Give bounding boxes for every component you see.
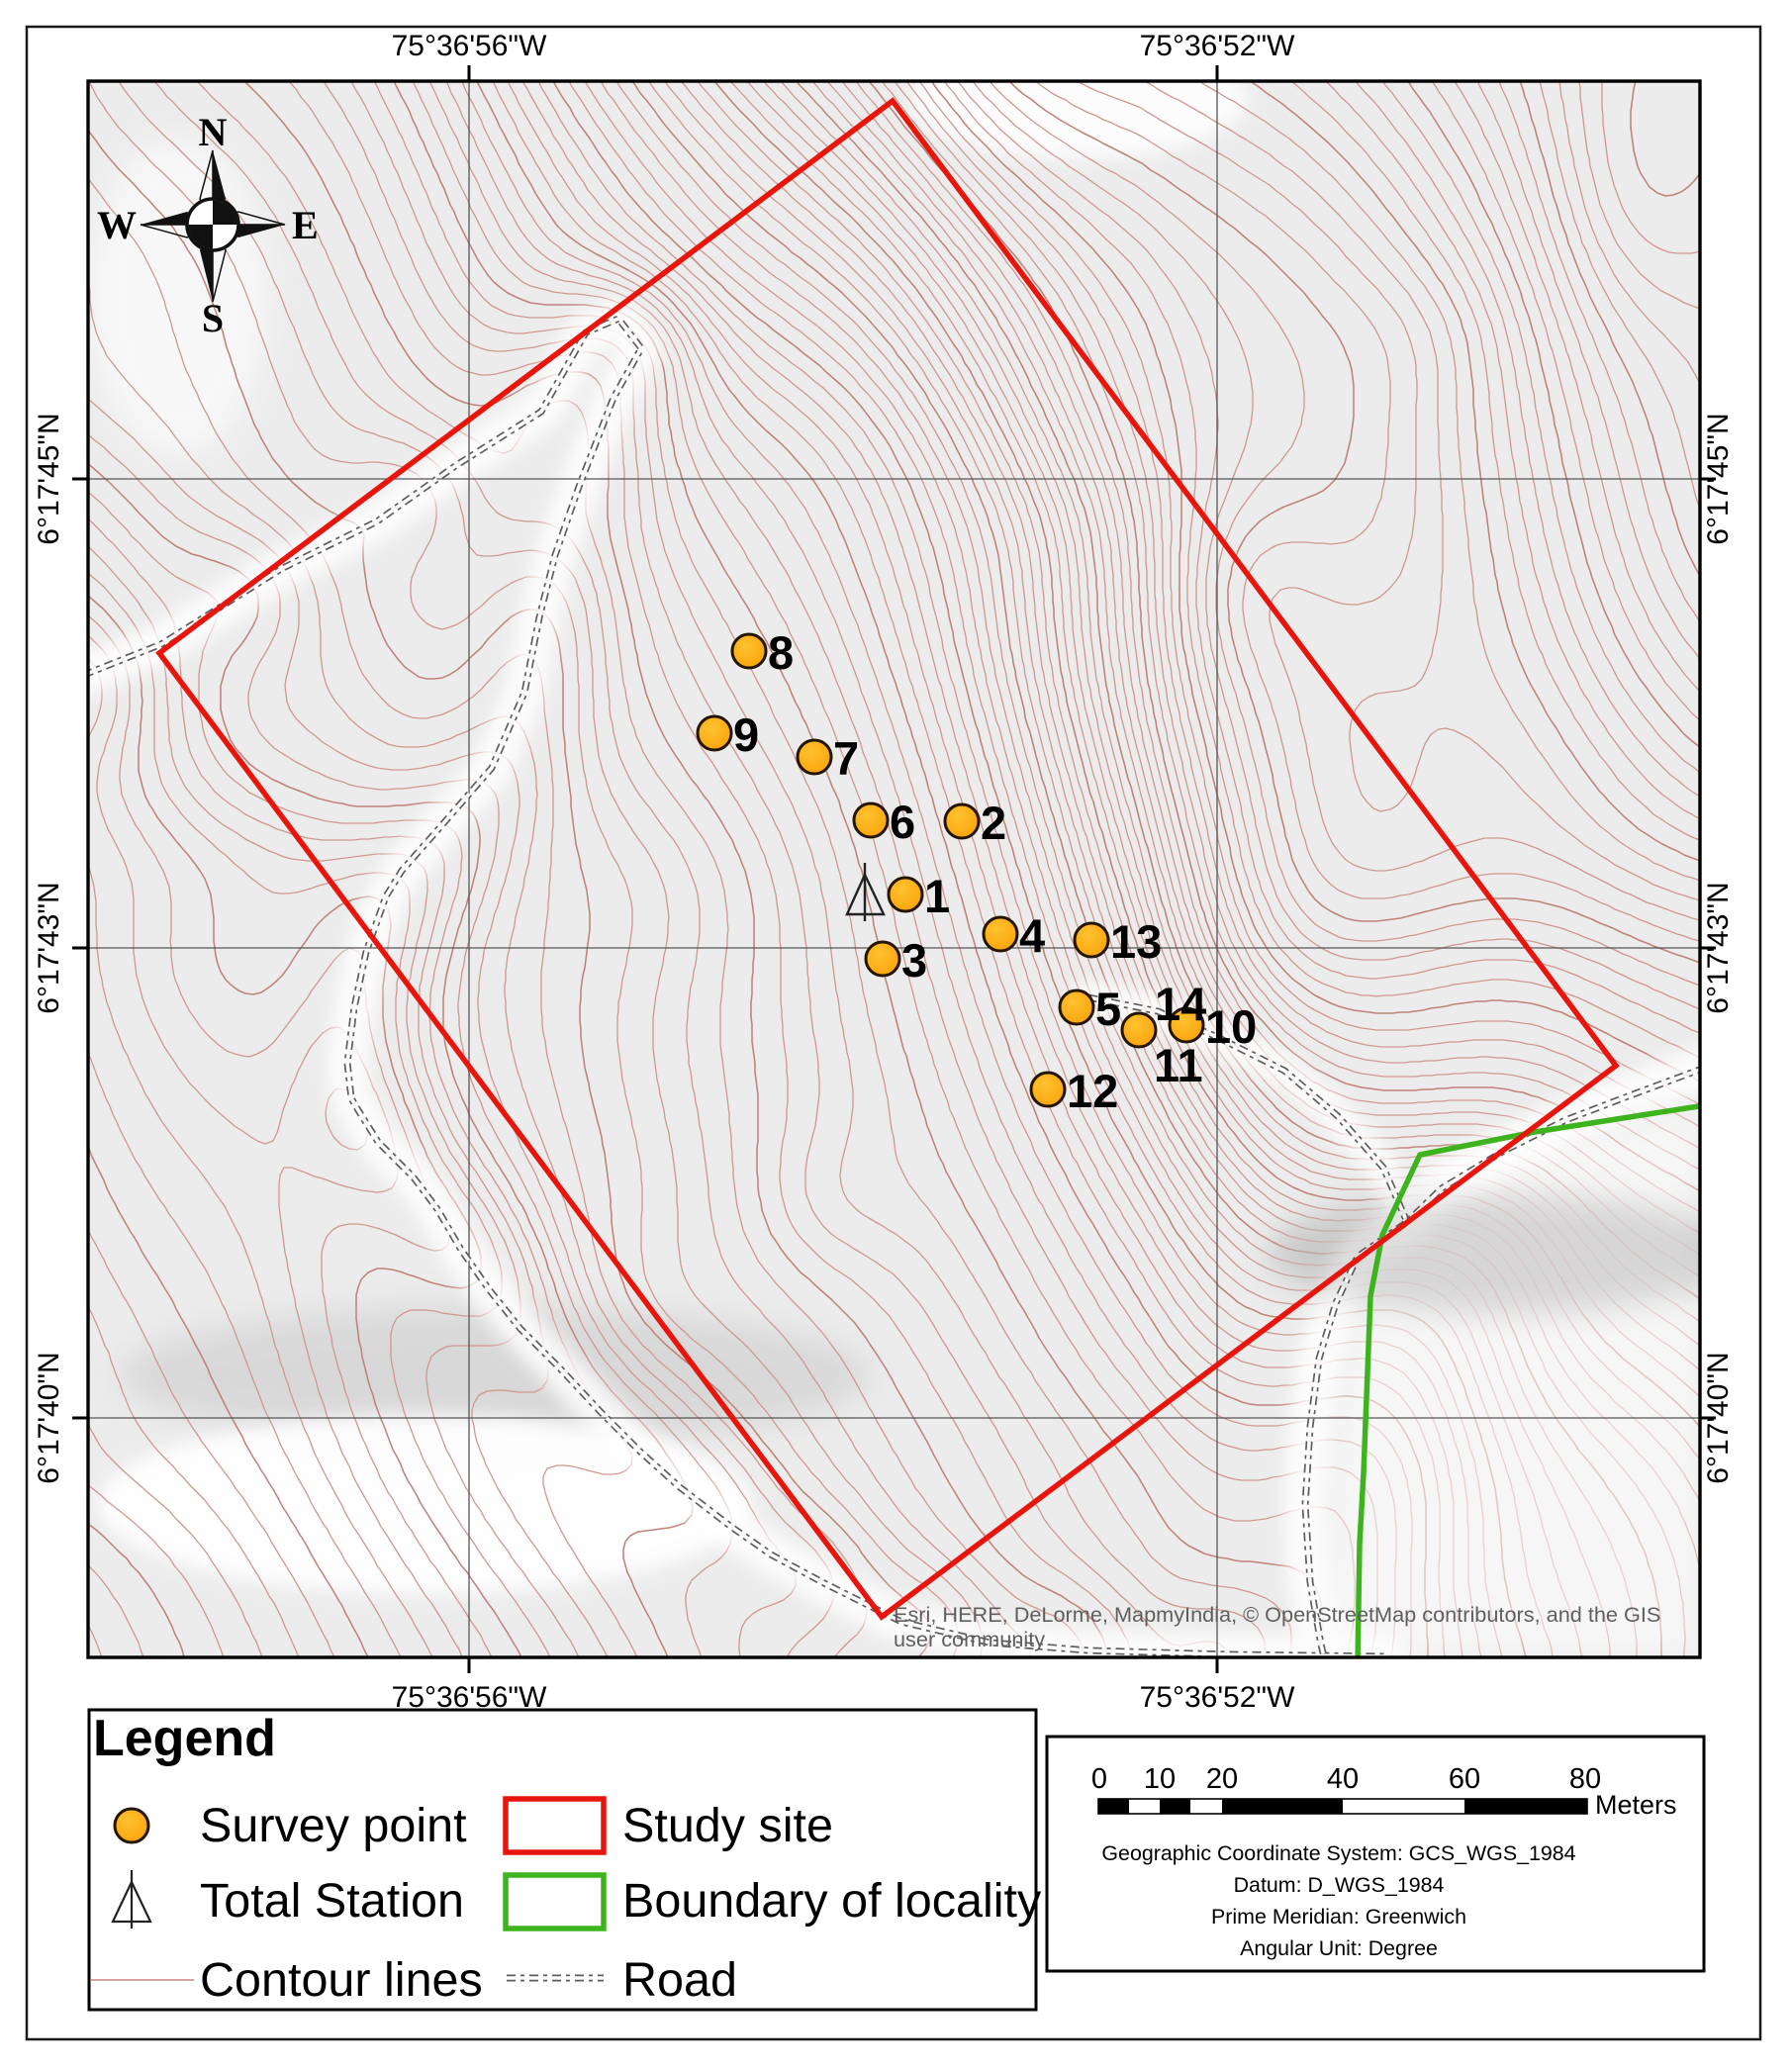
svg-text:11: 11 (1154, 1039, 1203, 1091)
svg-text:9: 9 (733, 708, 759, 761)
svg-text:6°17'45"N: 6°17'45"N (33, 413, 65, 544)
svg-text:3: 3 (901, 934, 927, 987)
svg-text:Angular Unit: Degree: Angular Unit: Degree (1240, 1936, 1438, 1960)
svg-text:Legend: Legend (93, 1710, 276, 1767)
svg-text:1: 1 (924, 870, 950, 922)
svg-text:Boundary of locality: Boundary of locality (622, 1874, 1042, 1928)
svg-text:Meters: Meters (1595, 1790, 1677, 1820)
svg-text:Prime Meridian: Greenwich: Prime Meridian: Greenwich (1211, 1905, 1466, 1929)
svg-text:60: 60 (1449, 1763, 1480, 1795)
svg-text:7: 7 (833, 732, 859, 785)
svg-text:75°36'52"W: 75°36'52"W (1140, 1681, 1295, 1714)
svg-text:75°36'52"W: 75°36'52"W (1140, 30, 1295, 62)
svg-text:E: E (292, 203, 319, 247)
svg-text:W: W (97, 203, 137, 247)
svg-text:6°17'40"N: 6°17'40"N (33, 1352, 65, 1483)
svg-text:6°17'43"N: 6°17'43"N (1702, 882, 1735, 1013)
svg-text:10: 10 (1205, 1000, 1257, 1053)
svg-text:2: 2 (981, 797, 1006, 849)
svg-text:0: 0 (1091, 1763, 1107, 1795)
svg-text:13: 13 (1110, 915, 1162, 968)
svg-text:6: 6 (890, 796, 915, 848)
svg-text:Geographic Coordinate System:: Geographic Coordinate System: GCS_WGS_19… (1101, 1841, 1575, 1865)
svg-text:Road: Road (622, 1953, 737, 2007)
svg-text:75°36'56"W: 75°36'56"W (392, 30, 547, 62)
svg-text:Survey point: Survey point (200, 1799, 467, 1852)
svg-text:4: 4 (1019, 909, 1045, 962)
svg-text:20: 20 (1206, 1763, 1238, 1795)
svg-text:Contour lines: Contour lines (200, 1953, 483, 2007)
svg-text:40: 40 (1327, 1763, 1359, 1795)
svg-text:6°17'45"N: 6°17'45"N (1702, 413, 1735, 544)
svg-text:Study site: Study site (622, 1799, 833, 1852)
svg-text:user community: user community (894, 1627, 1045, 1651)
svg-text:10: 10 (1144, 1763, 1176, 1795)
svg-text:Datum: D_WGS_1984: Datum: D_WGS_1984 (1234, 1873, 1445, 1897)
svg-text:6°17'43"N: 6°17'43"N (33, 882, 65, 1013)
svg-text:6°17'40"N: 6°17'40"N (1702, 1352, 1735, 1483)
svg-text:14: 14 (1155, 978, 1206, 1030)
svg-text:12: 12 (1067, 1065, 1118, 1117)
svg-text:S: S (202, 296, 224, 340)
svg-text:8: 8 (768, 626, 794, 679)
svg-text:N: N (199, 110, 228, 154)
svg-text:Esri, HERE, DeLorme, MapmyIndi: Esri, HERE, DeLorme, MapmyIndia, © OpenS… (894, 1602, 1660, 1627)
svg-text:Total Station: Total Station (200, 1874, 464, 1928)
svg-text:5: 5 (1095, 983, 1121, 1035)
